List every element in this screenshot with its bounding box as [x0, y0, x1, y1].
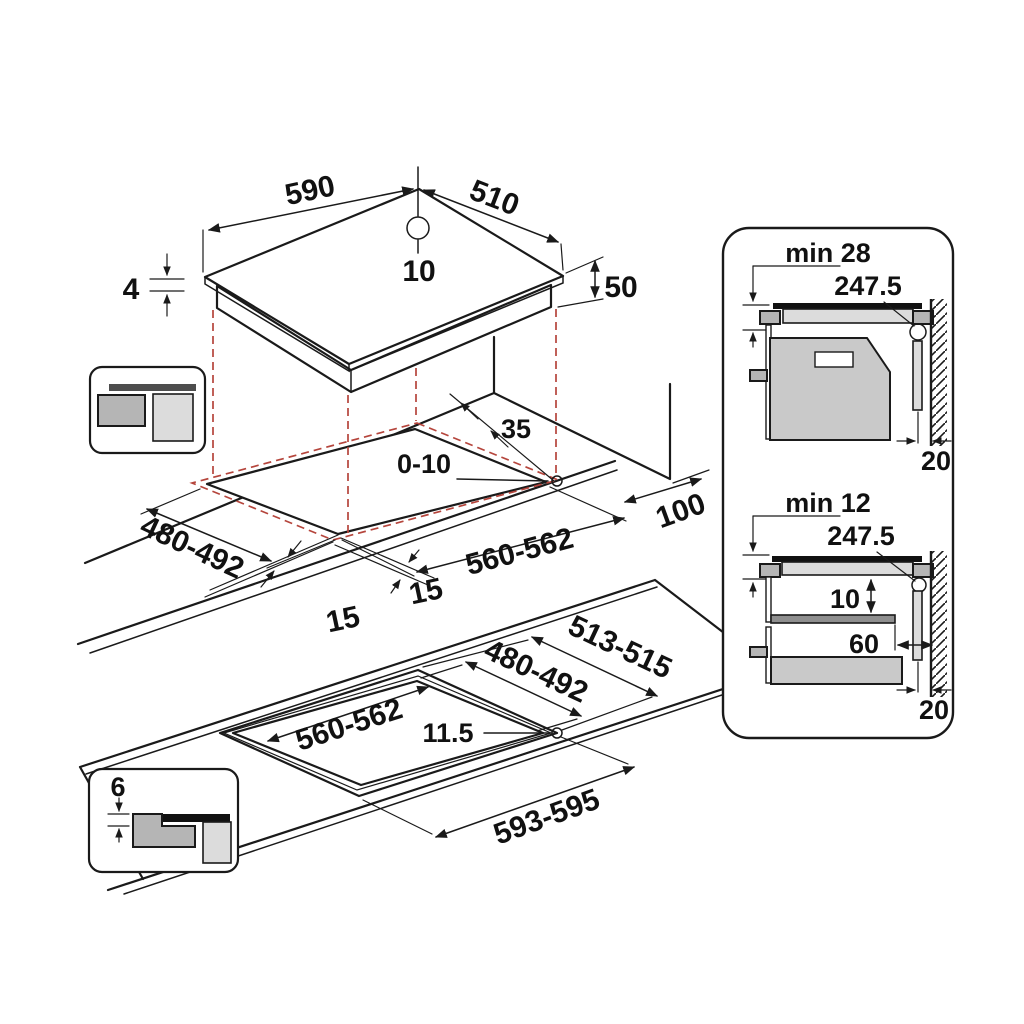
dim-recess-depth: 6 — [110, 772, 125, 802]
dim-side-gap: 100 — [652, 487, 710, 535]
glass-section-b — [772, 556, 922, 562]
wall-hatch-b — [932, 551, 947, 697]
dim-wall-gap-bottom: 20 — [919, 695, 949, 725]
dim-margin-left: 15 — [323, 600, 363, 639]
dim-rear-gap: 35 — [501, 414, 531, 444]
dim-corner-play: 0-10 — [397, 449, 451, 479]
drawer-body — [771, 657, 902, 684]
worktop-block — [98, 395, 145, 426]
worktop-left-b — [760, 564, 780, 577]
rear-spacer — [913, 341, 922, 410]
flush-glass-strip — [163, 814, 230, 822]
hob-body-block — [153, 394, 193, 441]
dim-hole-offset: 10 — [402, 255, 435, 288]
glass-strip — [109, 384, 196, 391]
flush-hob-body — [203, 822, 231, 863]
label-min-clearance-oven: min 28 — [785, 238, 871, 268]
dim-shelf-depth: 60 — [849, 629, 879, 659]
dim-duct-top: 247.5 — [834, 271, 902, 301]
dim-margin-front: 15 — [406, 572, 446, 611]
overlay-detail-box — [90, 367, 205, 453]
dim-glass-thickness: 4 — [123, 273, 140, 306]
dim-corner-radius: 11.5 — [422, 718, 473, 748]
dim-wall-gap-top: 20 — [921, 446, 951, 476]
cabinet-bracket — [750, 370, 767, 381]
dim-depth: 510 — [465, 174, 524, 223]
worktop-left — [760, 311, 780, 324]
label-min-clearance-drawer: min 12 — [785, 488, 871, 518]
wall-hatch — [932, 299, 947, 446]
dim-body-height: 50 — [604, 271, 637, 304]
glass-section — [773, 303, 922, 309]
dim-cutout-depth: 480-492 — [135, 509, 249, 585]
dim-cutout-width: 560-562 — [462, 522, 577, 582]
cutout-opening — [207, 429, 546, 534]
separator-shelf — [771, 615, 895, 623]
top-isometric-view: 10 590 510 4 50 — [123, 167, 638, 392]
side-section-panel: min 28 247.5 20 min 12 — [723, 228, 953, 738]
rear-spacer-b — [913, 591, 922, 660]
dim-duct-bottom: 247.5 — [827, 521, 895, 551]
flush-detail-box: 6 — [89, 769, 238, 872]
cabinet-bracket-b — [750, 647, 767, 657]
installation-diagram: 10 590 510 4 50 35 0- — [0, 0, 1024, 1024]
hob-body-section — [783, 309, 913, 323]
dim-flush-outer-width: 593-595 — [489, 783, 604, 852]
oven-vent — [815, 352, 853, 367]
dim-shelf-clearance: 10 — [830, 584, 860, 614]
